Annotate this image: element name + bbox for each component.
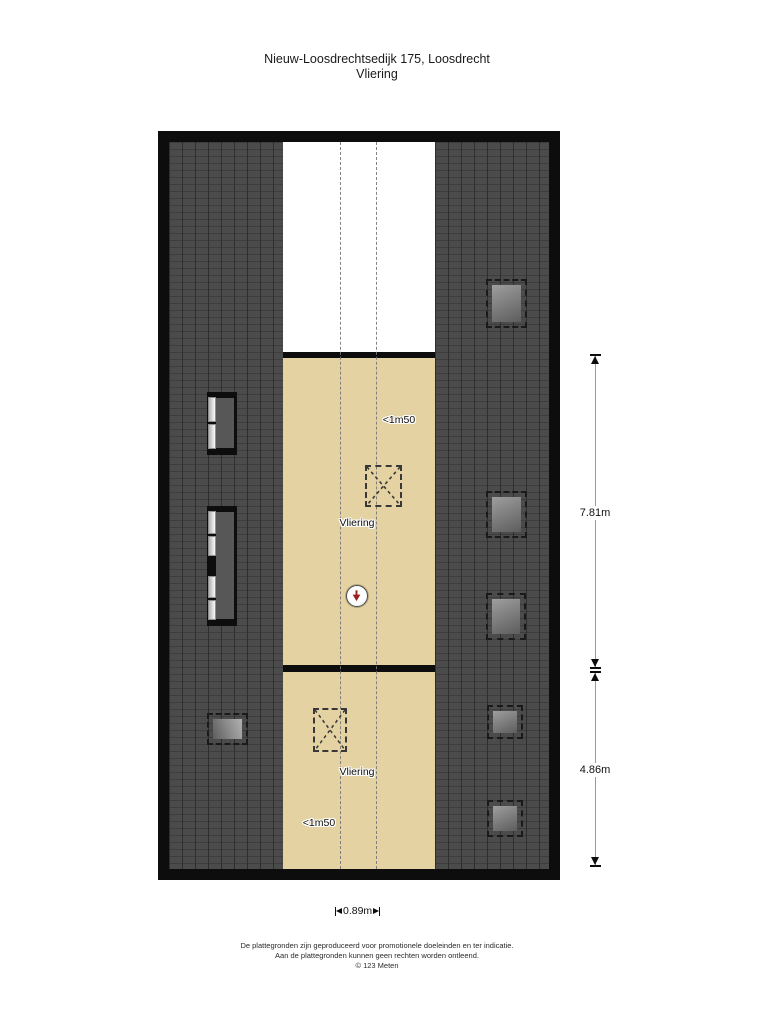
title-address: Nieuw-Loosdrechtsedijk 175, Loosdrecht — [264, 52, 490, 67]
skylight-glass — [493, 806, 517, 831]
dimension-arrow-up — [591, 673, 599, 681]
glazing-segment — [208, 397, 216, 422]
dimension-label: 0.89m — [342, 905, 373, 917]
skylight-window — [486, 593, 526, 640]
dimension-bottom: 0.89m — [335, 904, 380, 918]
dimension-tick — [379, 907, 380, 916]
disclaimer-line-2: Aan de plattegronden kunnen geen rechten… — [240, 951, 513, 961]
hatch-cross-icon — [315, 710, 345, 750]
copyright-line: © 123 Meten — [240, 961, 513, 971]
floorplan-page: Nieuw-Loosdrechtsedijk 175, Loosdrecht V… — [0, 0, 768, 1024]
attic-center-strip — [283, 142, 435, 869]
roof-hatch-icon — [313, 708, 347, 752]
dimension-arrow-up — [591, 356, 599, 364]
room-label: Vliering — [339, 517, 374, 529]
attic-void-area — [283, 142, 435, 352]
north-arrow-icon — [346, 585, 368, 607]
skylight-window — [487, 705, 523, 739]
skylight-window — [486, 279, 527, 328]
skylight-window — [486, 491, 527, 538]
floorplan-canvas: <1m50 Vliering Vliering <1m50 — [158, 131, 560, 880]
dormer-window — [207, 506, 237, 626]
title-floor: Vliering — [264, 67, 490, 82]
footer-disclaimer: De plattegronden zijn geproduceerd voor … — [240, 941, 513, 971]
dormer-window — [207, 392, 237, 455]
disclaimer-line-1: De plattegronden zijn geproduceerd voor … — [240, 941, 513, 951]
dimension-arrow-down — [591, 659, 599, 667]
dimension-label: 4.86m — [578, 763, 613, 777]
window-glazing — [208, 397, 216, 449]
skylight-glass — [492, 285, 521, 322]
skylight-window — [487, 800, 523, 837]
page-title: Nieuw-Loosdrechtsedijk 175, Loosdrecht V… — [264, 52, 490, 82]
dimension-arrow-down — [591, 857, 599, 865]
upper-attic-room — [283, 358, 435, 665]
dimension-cap — [590, 667, 601, 669]
glazing-segment — [208, 600, 216, 620]
wall-separator — [283, 665, 435, 672]
dimension-cap — [590, 865, 601, 867]
skylight-glass — [213, 719, 242, 739]
roof-hatch-icon — [365, 465, 402, 507]
floorplan-interior: <1m50 Vliering Vliering <1m50 — [169, 142, 549, 869]
glazing-segment — [208, 424, 216, 449]
ridge-dash-line-left — [340, 142, 341, 869]
skylight-window — [207, 713, 248, 745]
height-note-label: <1m50 — [303, 817, 335, 829]
height-note-label: <1m50 — [383, 414, 415, 426]
dormer-roof-pane — [216, 398, 234, 448]
skylight-glass — [492, 599, 520, 634]
dimension-label: 7.81m — [578, 506, 613, 520]
skylight-glass — [493, 711, 517, 733]
room-label: Vliering — [339, 766, 374, 778]
hatch-cross-icon — [367, 467, 400, 505]
dormer-roof-pane — [216, 512, 234, 619]
glazing-segment — [208, 536, 216, 556]
glazing-segment — [208, 576, 216, 598]
glazing-segment-dark — [208, 558, 216, 574]
north-arrow-glyph — [347, 586, 366, 605]
skylight-glass — [492, 497, 521, 532]
glazing-segment — [208, 511, 216, 534]
window-glazing — [208, 511, 216, 620]
